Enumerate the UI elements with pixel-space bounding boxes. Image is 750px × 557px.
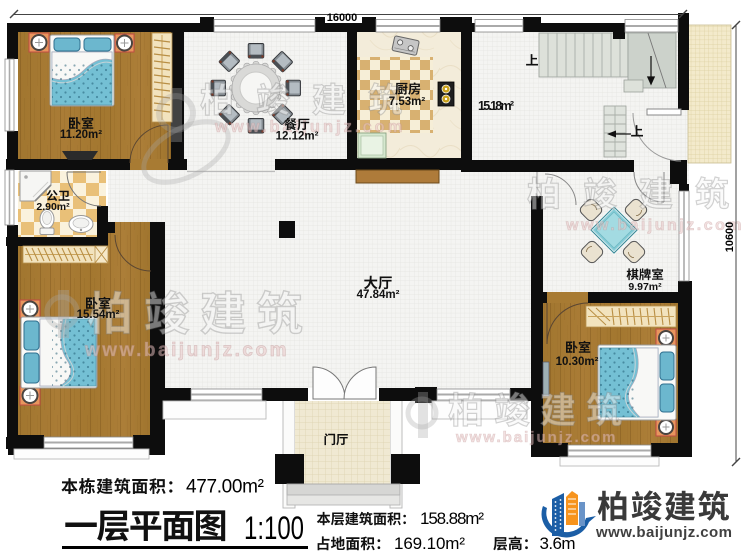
svg-text:15.18m²: 15.18m² — [478, 99, 514, 113]
svg-text:11.20m²: 11.20m² — [60, 129, 102, 141]
svg-text:47.84m²: 47.84m² — [357, 289, 400, 301]
svg-text:www.baijunjz.com: www.baijunjz.com — [84, 340, 289, 361]
svg-text:158.88m²: 158.88m² — [420, 509, 484, 528]
svg-text:www.baijunjz.com: www.baijunjz.com — [595, 524, 732, 541]
svg-text:www.baijunjz.com: www.baijunjz.com — [565, 217, 744, 234]
svg-text:10.30m²: 10.30m² — [556, 356, 599, 368]
svg-text:9.97m²: 9.97m² — [628, 281, 662, 293]
svg-text:477.00m²: 477.00m² — [186, 477, 264, 498]
svg-text:169.10m²: 169.10m² — [394, 534, 465, 553]
svg-text:7.53m²: 7.53m² — [389, 96, 426, 108]
svg-text:1:100: 1:100 — [244, 510, 304, 546]
svg-text:www.baijunjz.com: www.baijunjz.com — [455, 429, 617, 446]
svg-text:12.12m²: 12.12m² — [276, 131, 319, 143]
svg-text:2.90m²: 2.90m² — [36, 201, 70, 213]
svg-text:16000: 16000 — [327, 12, 358, 24]
svg-text:15.54m²: 15.54m² — [77, 309, 120, 321]
svg-text:10600: 10600 — [724, 222, 736, 253]
